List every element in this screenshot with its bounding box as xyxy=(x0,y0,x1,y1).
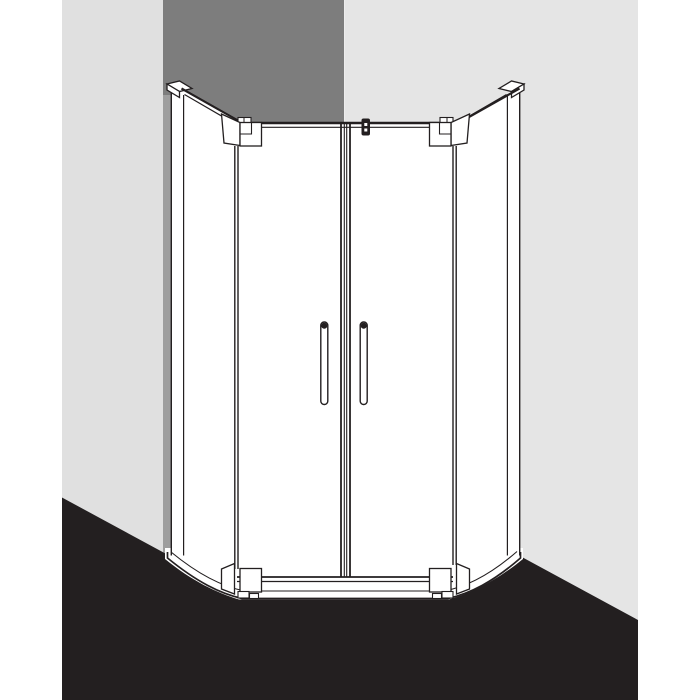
handle-right-mount xyxy=(361,323,367,329)
glass-clamp-screw-top xyxy=(364,123,367,126)
hinge-bottom-right-flap xyxy=(457,564,470,595)
hinge-bottom-right-foot-a xyxy=(442,592,453,599)
handle-right xyxy=(360,322,367,405)
glass-clamp-body xyxy=(362,119,371,136)
handle-left xyxy=(321,322,328,405)
wall-profile-left-shadow-face xyxy=(163,95,171,553)
hinge-bottom-left-face xyxy=(240,569,262,593)
glass-clamp-screw-bottom xyxy=(364,129,367,132)
hinge-bottom-right-foot-b xyxy=(433,594,442,599)
handle-right-bar xyxy=(360,322,367,405)
hinge-bottom-right-face xyxy=(430,569,452,593)
shower-enclosure-illustration xyxy=(0,0,700,700)
handle-left-bar xyxy=(321,322,328,405)
hinge-bottom-left-foot-b xyxy=(250,594,259,599)
handle-left-mount xyxy=(321,323,327,329)
hinge-bottom-left-foot-a xyxy=(238,592,249,599)
product-illustration xyxy=(0,0,700,700)
wall-left xyxy=(62,0,163,553)
glass-clamp xyxy=(362,119,371,136)
glass-area xyxy=(171,88,520,558)
shower-enclosure xyxy=(165,81,524,600)
hinge-bottom-left-flap xyxy=(222,564,235,595)
